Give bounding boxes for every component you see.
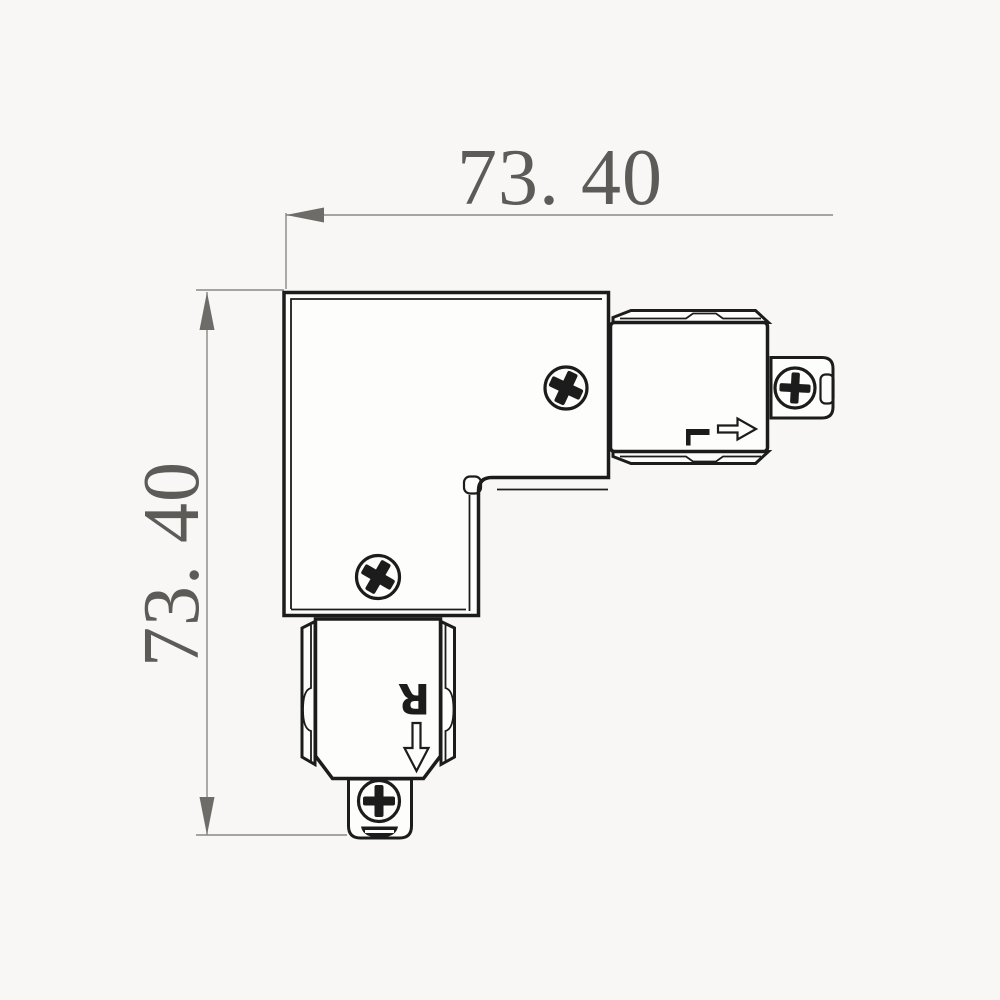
phillips-screw-bottom: [359, 781, 400, 822]
phillips-screw-middle: [355, 554, 401, 600]
height-arrowhead-top: [200, 292, 215, 330]
width-arrowhead-left: [286, 208, 324, 223]
right-connector-top-lip: [613, 311, 769, 323]
bottom-connector-right-lip: [441, 622, 455, 765]
width-dimension-value: 73. 40: [457, 134, 663, 222]
connector-main-body: [284, 293, 609, 616]
bottom-connector-left-lip: [302, 622, 315, 765]
width-dimension: 73. 40: [286, 134, 833, 289]
right-connector-bottom-lip: [613, 452, 769, 464]
l-track-connector-drawing: 73. 40 73. 40 L R: [0, 0, 1000, 1000]
technical-drawing-page: 73. 40 73. 40 L R: [0, 0, 1000, 1000]
height-arrowhead-bottom: [200, 797, 215, 835]
height-dimension-value: 73. 40: [128, 461, 216, 667]
right-direction-letter: L: [678, 426, 716, 446]
phillips-screw-right: [775, 368, 815, 408]
body-outline: [284, 293, 609, 616]
phillips-screw-top: [543, 365, 588, 410]
bottom-direction-letter: R: [398, 674, 430, 723]
